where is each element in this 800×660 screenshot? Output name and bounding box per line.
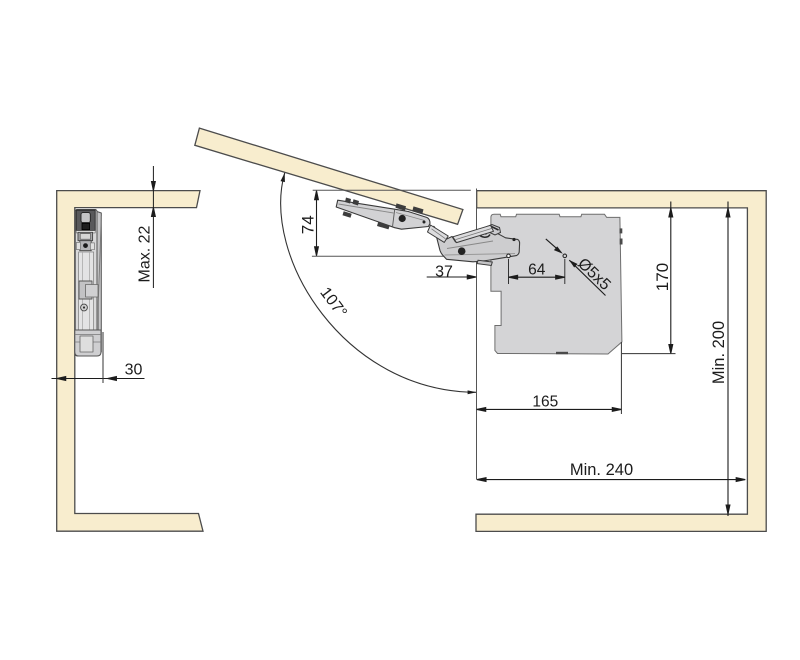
svg-text:Max. 22: Max. 22 — [137, 225, 154, 282]
svg-text:Min. 240: Min. 240 — [570, 461, 633, 479]
svg-text:Min. 200: Min. 200 — [710, 321, 728, 384]
svg-text:74: 74 — [299, 215, 318, 234]
svg-text:37: 37 — [435, 263, 453, 280]
svg-text:107°: 107° — [316, 284, 349, 321]
svg-text:165: 165 — [532, 393, 558, 410]
svg-text:170: 170 — [653, 263, 672, 291]
svg-text:30: 30 — [125, 362, 143, 379]
svg-text:64: 64 — [528, 262, 546, 279]
